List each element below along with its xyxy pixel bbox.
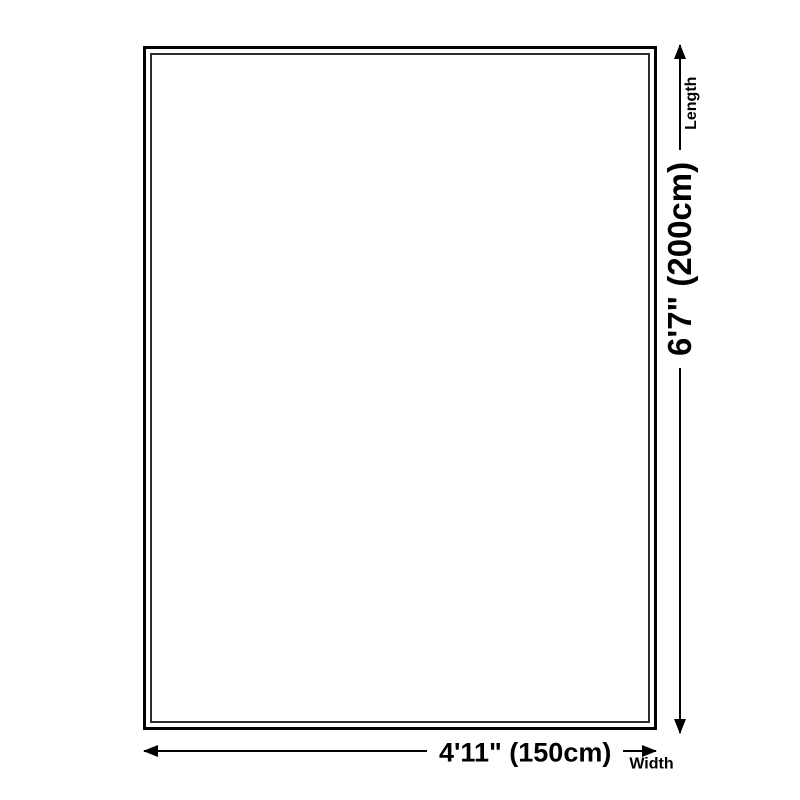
arrow-down-icon [674,719,686,734]
item-outline-outer-border [143,46,657,730]
arrow-up-icon [674,44,686,59]
item-outline-inner-border [150,53,650,723]
length-dimension-line [679,45,681,733]
arrow-left-icon [143,745,158,757]
width-value: 4'11" (150cm) [427,737,623,768]
length-label: Length [683,77,701,130]
width-label: Width [629,755,673,773]
length-value: 6'7" (200cm) [661,150,699,368]
size-diagram: 6'7" (200cm) Length 4'11" (150cm) Width [0,0,800,800]
